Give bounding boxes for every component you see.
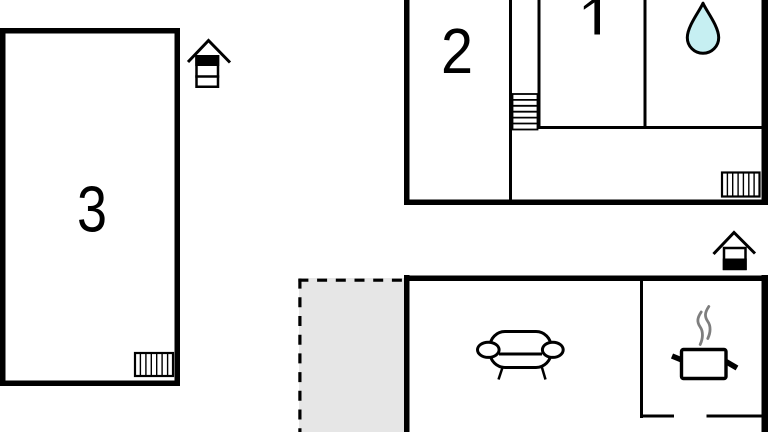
svg-text:2: 2 [441, 15, 473, 86]
svg-text:3: 3 [77, 173, 107, 246]
